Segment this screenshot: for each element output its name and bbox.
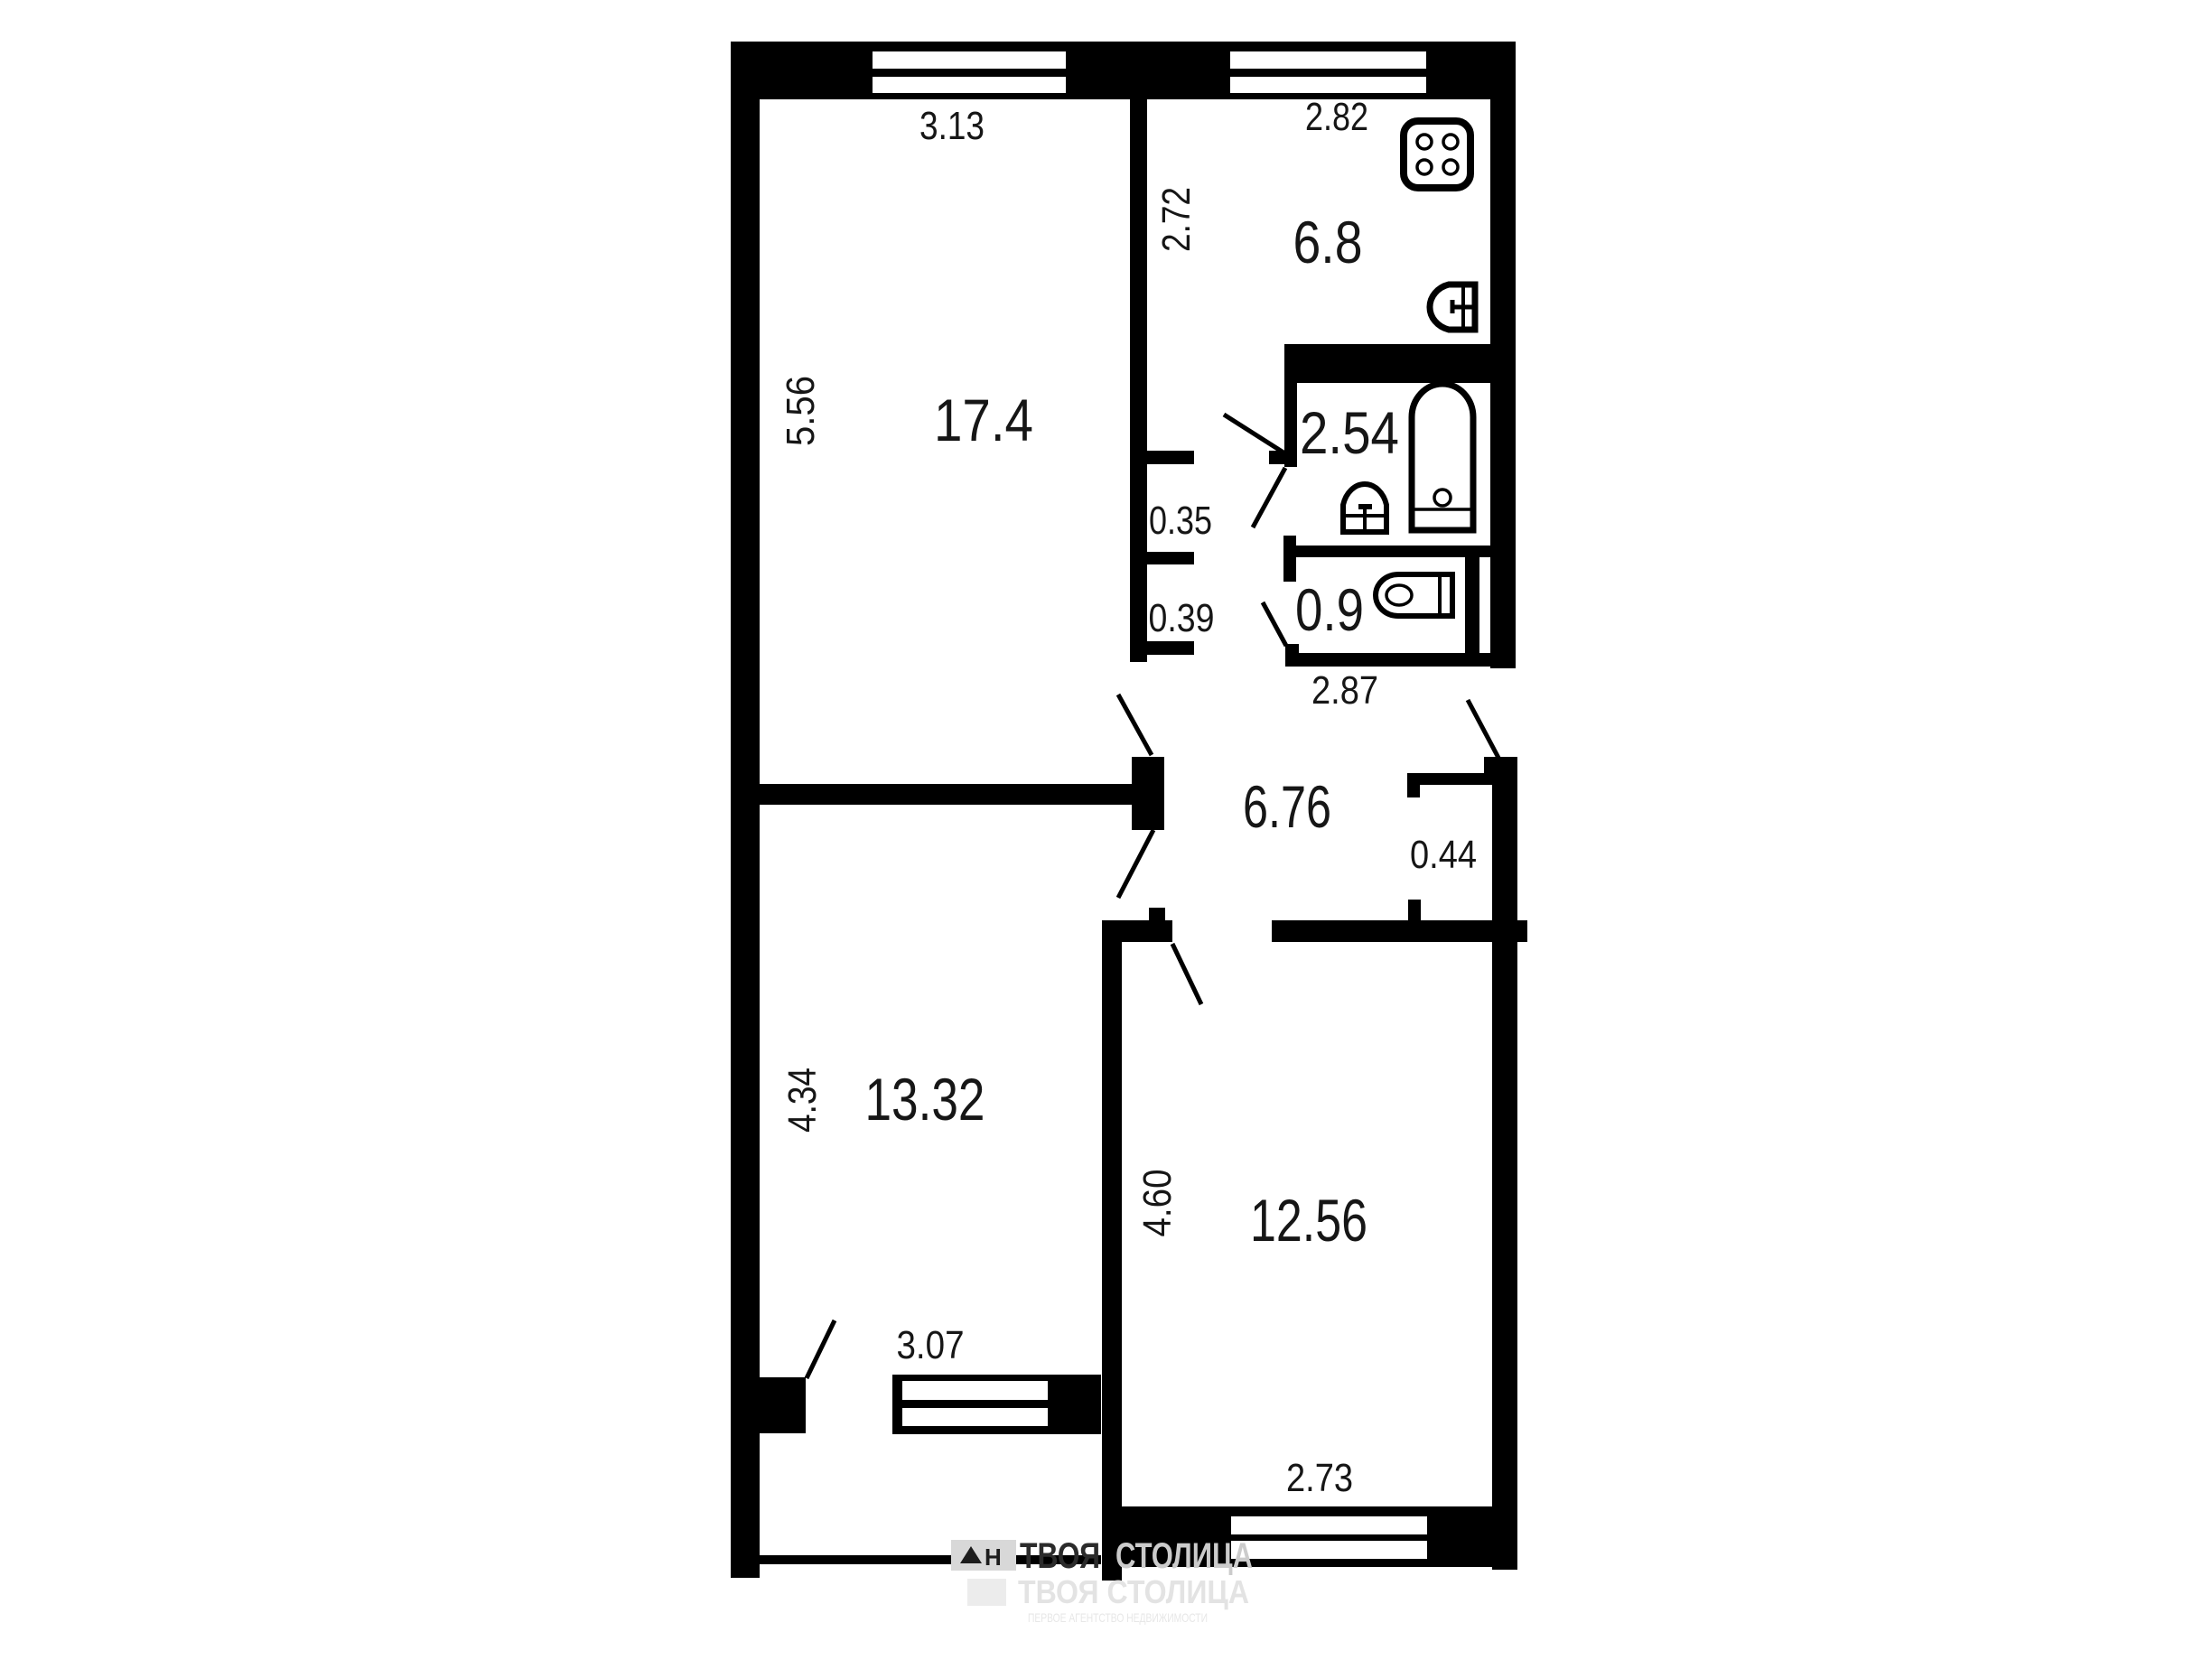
svg-text:2.72: 2.72 <box>1154 187 1199 252</box>
svg-text:13.32: 13.32 <box>865 1066 985 1133</box>
svg-text:2.54: 2.54 <box>1300 399 1399 466</box>
svg-text:3.13: 3.13 <box>919 104 985 148</box>
svg-text:17.4: 17.4 <box>934 387 1033 453</box>
svg-text:Н: Н <box>985 1543 1002 1571</box>
svg-text:5.56: 5.56 <box>779 376 823 446</box>
svg-text:ПЕРВОЕ АГЕНТСТВО НЕДВИЖИМОСТИ: ПЕРВОЕ АГЕНТСТВО НЕДВИЖИМОСТИ <box>1028 1610 1208 1625</box>
svg-text:0.39: 0.39 <box>1149 596 1215 640</box>
svg-text:6.8: 6.8 <box>1293 209 1363 275</box>
svg-text:ТВОЯ: ТВОЯ <box>1020 1536 1100 1576</box>
svg-text:ТВОЯ СТОЛИЦА: ТВОЯ СТОЛИЦА <box>1018 1573 1249 1610</box>
svg-text:0.44: 0.44 <box>1410 833 1477 877</box>
svg-text:12.56: 12.56 <box>1250 1187 1367 1254</box>
svg-text:4.60: 4.60 <box>1135 1170 1180 1237</box>
svg-text:3.07: 3.07 <box>897 1323 965 1367</box>
svg-text:0.35: 0.35 <box>1149 499 1212 543</box>
svg-text:4.34: 4.34 <box>780 1068 825 1133</box>
svg-text:2.73: 2.73 <box>1286 1456 1353 1500</box>
svg-text:2.87: 2.87 <box>1311 668 1378 713</box>
svg-text:6.76: 6.76 <box>1243 773 1331 840</box>
svg-text:СТОЛИЦА: СТОЛИЦА <box>1115 1536 1253 1576</box>
svg-text:2.82: 2.82 <box>1305 95 1368 139</box>
svg-text:0.9: 0.9 <box>1295 576 1364 643</box>
